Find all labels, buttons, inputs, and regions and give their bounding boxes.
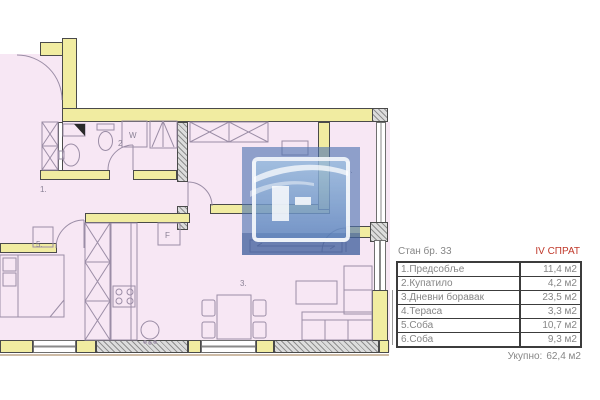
entry-door-arc-icon [17,55,62,100]
total-label: Укупно: [508,351,543,363]
room-label: 5.Соба [398,320,519,332]
bath-sink-icon [59,144,80,166]
area-table: Стан бр. 33 IV СПРАТ 1.Предсобље 11,4 м2… [396,246,582,363]
room-area: 9,3 м2 [519,333,580,346]
kitchen-sink-icon [141,321,159,344]
bed-icon [0,255,64,317]
legend-header: Стан бр. 33 IV СПРАТ [396,246,582,258]
bath-door-arc-icon [108,145,133,170]
hall-wardrobe-icon [42,122,58,170]
room5-mark: 5. [36,240,43,249]
table-row: 6.Соба 9,3 м2 [398,332,580,346]
room-label: 3.Дневни боравак [398,292,519,304]
room5-door-arc-icon [56,220,84,248]
room-label: 2.Купатило [398,278,519,290]
table-row: 2.Купатило 4,2 м2 [398,276,580,290]
table-row: 4.Тераса 3,3 м2 [398,304,580,318]
room6-door-arc-icon [188,182,212,206]
shower-icon [150,121,177,148]
room-label: 4.Тераса [398,306,519,318]
room1-mark: 1. [40,185,47,194]
table-row: 3.Дневни боравак 23,5 м2 [398,290,580,304]
toilet-icon [97,124,114,151]
washer-mark: W [129,131,137,140]
table-row: 5.Соба 10,7 м2 [398,318,580,332]
room-area: 11,4 м2 [519,263,580,276]
table-row: 1.Предсобље 11,4 м2 [398,263,580,276]
room-label: 1.Предсобље [398,264,519,276]
kitchen-closet-icon [85,223,110,340]
total-area: 62,4 м2 [546,351,581,363]
washing-machine-icon: W [122,121,147,147]
watermark-bar-icon [272,186,289,221]
room-area: 3,3 м2 [519,305,580,318]
room-area: 10,7 м2 [519,319,580,332]
fridge-mark: F [165,231,170,240]
fridge-icon: F [158,223,180,245]
room-label: 6.Соба [398,334,519,346]
room3-mark: 3. [240,279,247,288]
watermark-art [242,147,360,255]
developer-watermark-logo [242,147,360,255]
room-area-table: 1.Предсобље 11,4 м2 2.Купатило 4,2 м2 3.… [396,261,582,348]
room2-mark: 2 [118,139,123,148]
bath-cabinet-icon [63,124,85,136]
unit-title: Стан бр. 33 [398,246,452,258]
kitchen-counter-icon [111,223,137,340]
floor-label: IV СПРАТ [535,246,580,258]
floor-plan-page: W [0,0,600,400]
total-row: Укупно: 62,4 м2 [396,351,582,363]
room-area: 23,5 м2 [519,291,580,304]
room-area: 4,2 м2 [519,277,580,290]
dining-table-icon [202,295,266,339]
stove-icon [113,286,135,307]
coffee-table-icon [296,281,337,304]
watermark-swoosh-icon [254,165,348,183]
watermark-dash-icon [295,197,311,205]
room6-wardrobe-icon [190,122,268,142]
